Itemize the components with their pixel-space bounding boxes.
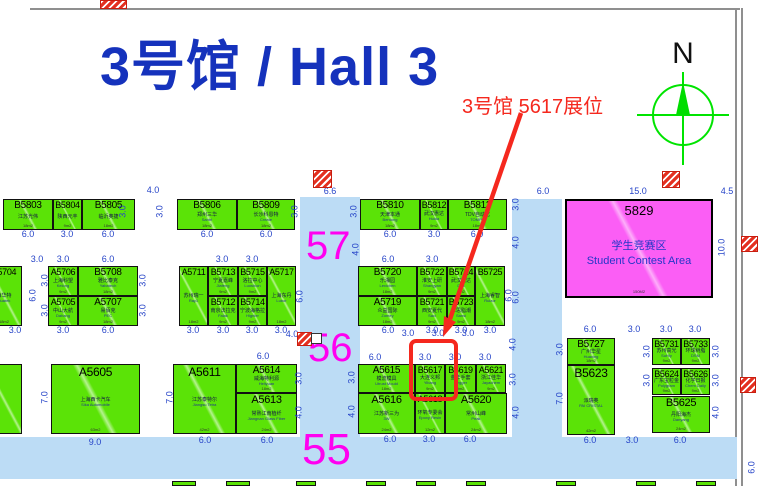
dimension-label: 6.0 [372,435,408,444]
booth-A5621: A5621浙江佳华Jayachem9m2 [476,364,506,393]
booth-B5804: B5804陕西元丰9m2 [53,199,82,230]
booth-number: B5723 [449,298,474,307]
dimension-label: 4.5 [709,187,745,196]
booth-A5618: A5618环氧专委会Epoxy Resin12m2 [415,393,445,434]
dimension-label: 7.0 [41,380,50,416]
floorplan-canvas: 57 56 55 B5803江苏光伟18m2B5804陕西元丰9m2B5805临… [0,0,760,486]
booth-B5624: B5624广东宝粒金Polygram9m2 [652,368,681,395]
booth-exhibitor-name-en: Huatek [0,299,12,304]
pillar-marker [313,170,332,188]
booth-size: 24m2 [261,427,271,432]
dimension-label: 3.0 [512,187,521,223]
dimension-label: 6.0 [90,326,126,335]
booth-exhibitor-name-en: Ruizor [480,299,500,304]
booth-B5806: B5806郑州三华Santri18m2 [177,199,237,230]
dimension-label: 6.0 [249,436,285,445]
dimension-label: 3.0 [49,230,85,239]
booth-number: A5620 [461,395,491,407]
dimension-label: 3.0 [677,325,713,334]
dimension-label: 4.0 [348,394,357,430]
dimension-label: 3.0 [0,326,33,335]
aisle-white-box [311,333,322,344]
dimension-label: 3.0 [295,361,304,397]
booth-size: 9m2 [428,289,436,294]
dimension-label: 3.0 [416,230,452,239]
booth-number: B5813 [464,201,491,212]
booth-size: 18m2 [103,289,113,294]
aisle-number-55: 55 [302,428,351,472]
booth-A5605: A5605上海西卡汽车Sika Automobile63m2 [51,364,140,434]
booth-B5619: B5619金华手套Hegger9m2 [445,364,476,393]
booth-B5812: B5812武汉惠达Huida9m2 [420,199,448,230]
booth-exhibitor-name-en: Huida [424,217,444,222]
booth-B5715: B5715洛拉中心Luoshion9m2 [238,266,267,296]
dimension-label: 9.0 [77,438,113,447]
booth-number: A5719 [374,298,401,309]
booth-B5809: B5809长沙科恩特Create18m2 [237,199,295,230]
dimension-label: 3.0 [41,293,50,329]
booth-B5625: B5625丹阳海杰Danyang24m2 [652,396,710,433]
booth-size: 18m2 [0,319,9,324]
booth-exhibitor-name-en: Jiafeng [213,284,233,289]
booth-edge-sliver [366,481,386,486]
booth-A5717: A5717上海东丹Lubor18m2 [267,266,296,326]
dimension-label: 3.0 [643,363,652,399]
booth-B5721: B5721西安夏代Saci9m2 [417,296,447,326]
dimension-label: 6.6 [312,187,348,196]
dimension-label: 3.0 [411,435,447,444]
booth-number: B5803 [14,201,41,212]
booth-exhibitor-name-en: Hignler [240,314,265,319]
dimension-label: 6.0 [248,230,284,239]
dimension-label: 3.0 [119,194,128,230]
booth-exhibitor-name-en: Falak [210,314,235,319]
booth-callout-text: 3号馆 5617展位 [462,90,603,119]
booth-number: A5705 [51,298,76,307]
dimension-label: 6.0 [90,230,126,239]
booth-number: B5720 [374,268,401,279]
booth-number: A5711 [182,268,206,277]
pillar-marker [741,236,758,252]
booth-number: B5809 [252,201,279,212]
booth-size: 18m2 [382,289,392,294]
booth-B5725: B5725上海睿智Ruizor18m2 [475,266,505,326]
booth-size: 24m2 [676,426,686,431]
dimension-label: 4.0 [295,395,304,431]
booth-size: 18m2 [385,223,395,228]
booth-exhibitor-name-en: Epoxy Resin [417,416,442,421]
booth-B5810: B5810天津本通Bentong18m2 [360,199,420,230]
booth-edge-sliver [416,481,436,486]
booth-B5813: B5813TDV自动化TOMPO18m2 [448,199,507,230]
dimension-label: 7.0 [556,381,565,417]
dimension-label: 3.0 [509,362,518,398]
booth-size: 9m2 [430,223,438,228]
booth-edge-sliver [636,481,656,486]
booth-edge-sliver [226,481,250,486]
booth-size: 9m2 [457,386,465,391]
dimension-label: 3.0 [45,255,81,264]
dimension-label: 3.0 [712,363,721,399]
dimension-label: 6.0 [452,435,488,444]
pillar-marker [740,377,756,393]
booth-exhibitor-name-en: PAI CRISTAL [579,404,603,409]
dimension-label: 6.0 [572,436,608,445]
dimension-label: 3.0 [450,329,486,338]
booth-B5713: B5713宁夏嘉峰Jiafeng9m2 [208,266,238,296]
booth-exhibitor-name-en: Lubor [271,299,291,304]
dimension-label: 3.0 [467,353,503,362]
booth-number: A5618 [418,395,443,404]
booth-number: A5707 [94,298,121,309]
booth-size: 9m2 [426,386,434,391]
booth-exhibitor-name-en: Sika Automobile [80,403,110,408]
booth-unlabeled [0,364,22,434]
pillar-marker [297,332,312,346]
booth-size: 9m2 [59,319,67,324]
dimension-label: 10.0 [718,230,727,266]
booth-size: 24m2 [471,427,481,432]
booth-edge-sliver [556,481,576,486]
dimension-label: 3.0 [614,436,650,445]
booth-size: 24m2 [381,427,391,432]
dimension-label: 3.0 [348,360,357,396]
booth-B5623: B5623派瑞奥PAI CRISTAL42m2 [567,365,615,435]
booth-size: 9m2 [663,388,671,393]
booth-exhibitor-name-en: Santri [197,218,217,223]
booth-exhibitor-name: 陕西元丰 [57,214,77,220]
booth-size: 18m2 [381,386,391,391]
booth-exhibitor-name-en: Dahang [53,314,73,319]
booth-A5616: A5616江苏新三为3W24m2 [358,393,415,434]
booth-size: 9m2 [219,289,227,294]
booth-B5708: B5708雅比泰克Yabatech18m2 [78,266,138,296]
dimension-label: 6.0 [372,230,408,239]
booth-number: B5623 [574,367,607,380]
booth-exhibitor-name-en: Create [253,218,278,223]
booth-size: 18m2 [103,223,113,228]
dimension-label: 6.0 [370,255,406,264]
booth-exhibitor-name-en: 3W [374,417,399,422]
booth-number: A5611 [188,366,220,379]
dimension-label: 7.0 [166,380,175,416]
booth-number: A5605 [79,366,112,379]
booth-size: 18m2 [586,358,596,363]
booth-number: B5714 [240,298,265,307]
booth-exhibitor-name-en: Sansi [451,314,471,319]
booth-size: 12m2 [425,427,435,432]
booth-size: 9m2 [487,386,495,391]
booth-edge-sliver [466,481,486,486]
booth-B5722: B5722淮安上研Shangyan9m2 [417,266,447,296]
booth-number: A5616 [371,395,401,407]
booth-number: B5725 [478,268,503,277]
booth-number: B5708 [94,268,121,279]
compass-n-label: N [672,37,694,70]
dimension-label: 4.0 [512,225,521,261]
booth-A5705: A5705中山大航Dahang9m2 [48,296,78,326]
booth-A5613: A5613常熟江南植纤Jiangnan Glass Fiber24m2 [236,393,297,434]
booth-size: 18m2 [261,223,271,228]
booth-A5611: A5611江苏泰特尔Jiangsu Tetra42m2 [173,364,236,434]
page-title: 3号馆 / Hall 3 [100,22,439,101]
booth-A5719: A5719众益国际Zomey18m2 [358,296,417,326]
booth-size: 63m2 [90,427,100,432]
booth-size: 18m2 [382,319,392,324]
dimension-label: 6.0 [296,279,305,315]
booth-exhibitor-name-en: Danyang [671,418,691,423]
compass: N [630,28,740,173]
student-contest-area: 5829 学生竞赛区 Student Contest Area 150M2 [565,199,713,298]
booth-size: 18m2 [276,319,286,324]
booth-number: B5722 [420,268,445,277]
dimension-label: 3.0 [350,194,359,230]
dimension-label: 6.0 [90,255,126,264]
booth-exhibitor-name-en: Ray1 [183,299,203,304]
contest-area-name-en: Student Contest Area [587,254,692,268]
booth-number: B5713 [211,268,236,277]
dimension-label: 15.0 [620,187,656,196]
booth-A5704: A5704西华特Huatek18m2 [0,266,22,326]
booth-number: B5625 [666,398,696,410]
booth-B5723: B5723三思脂潮Sansi9m2 [447,296,475,326]
booth-size: 18m2 [472,223,482,228]
booth-exhibitor-name: 临沂奥捷 [98,214,118,220]
pillar-marker [100,0,127,9]
booth-exhibitor-name-en: Saci [422,314,442,319]
booth-size: 9m2 [692,358,700,363]
booth-size: 42m2 [199,427,209,432]
booth-size: 18m2 [188,319,198,324]
booth-size: 18m2 [103,319,113,324]
dimension-label: 4.0 [712,395,721,431]
booth-exhibitor-name-en: Kelong [53,284,73,289]
dimension-label: 6.0 [748,450,757,486]
booth-size: 18m2 [23,223,33,228]
pillar-marker [662,171,680,188]
booth-size: 9m2 [219,319,227,324]
booth-number: A5717 [269,268,294,277]
booth-number: B5715 [240,268,265,277]
booth-exhibitor-name-en: Peak [466,417,486,422]
dimension-label: 4.0 [512,395,521,431]
booth-B5720: B5720乐湘园Lexichen18m2 [358,266,417,296]
booth-size: 9m2 [663,358,671,363]
booth-exhibitor-name-en: Jiangnan Glass Fiber [248,417,286,422]
booth-B5714: B5714宁波海格拉Hignler9m2 [238,296,267,326]
booth-size: 9m2 [428,319,436,324]
booth-edge-sliver [296,481,316,486]
dimension-label: 6.0 [187,436,223,445]
booth-exhibitor-name: 江苏光伟 [18,214,38,220]
dimension-label: 6.0 [505,278,514,314]
booth-exhibitor-name-en: Luoshion [242,284,262,289]
booth-size: 9m2 [59,289,67,294]
booth-number: B5806 [193,201,220,212]
dimension-label: 6.0 [357,353,393,362]
dimension-label: 6.0 [662,436,698,445]
booth-number: A5613 [251,395,281,407]
booth-B5727: B5727广州华星Huaxing18m2 [567,338,615,365]
booth-B5626: B5626化学日报Chem Daily9m2 [681,368,710,395]
booth-edge-sliver [172,481,196,486]
dimension-label: 6.0 [525,187,561,196]
booth-exhibitor-name-en: Shangyan [422,284,442,289]
dimension-label: 3.0 [139,293,148,329]
dimension-label: 3.0 [556,332,565,368]
dimension-label: 6.0 [10,230,46,239]
booth-A5614: A5614威海特利源Heliyuan18m2 [236,364,297,393]
booth-A5707: A5707易佰克PEC18m2 [78,296,138,326]
booth-size: 9m2 [692,388,700,393]
compass-needle-icon [676,82,690,115]
contest-area-size: 150M2 [633,289,645,294]
dimension-label: 3.0 [234,255,270,264]
booth-size: 18m2 [202,223,212,228]
dimension-label: 3.0 [291,194,300,230]
booth-size: 18m2 [485,319,495,324]
booth-size: 9m2 [249,319,257,324]
booth-exhibitor-name-en: Bentong [380,218,400,223]
dimension-label: 4.0 [135,186,171,195]
booth-size: 9m2 [64,223,72,228]
booth-size: 42m2 [586,428,596,433]
booth-number: A5706 [51,268,76,277]
booth-A5706: A5706上海科望Kelong9m2 [48,266,78,296]
dimension-label: 6.0 [572,325,608,334]
booth-B5724: B5724武汉君达Dita9m2 [447,266,475,296]
dimension-label: 3.0 [156,194,165,230]
booth-B5803: B5803江苏光伟18m2 [3,199,53,230]
booth-exhibitor-name-en: Jiangsu Tetra [192,403,217,408]
booth-A5711: A5711苏州瑞一Ray118m2 [179,266,208,326]
booth-B5617: B5617大连义邦Yibang9m2 [415,364,445,393]
dimension-label: 4.0 [509,327,518,363]
booth-B5733: B5733环球树脂DSM9m2 [681,338,710,365]
booth-A5620: A5620常州山峰Peak24m2 [445,393,507,434]
dimension-label: 3.0 [45,326,81,335]
dimension-label: 6.0 [245,352,281,361]
booth-number: B5812 [422,201,447,210]
dimension-label: 3.0 [414,255,450,264]
booth-exhibitor-name-en: Dita [451,284,471,289]
booth-number: B5810 [376,201,403,212]
dimension-label: 4.0 [352,232,361,268]
booth-number: B5724 [449,268,474,277]
booth-size: 18m2 [261,386,271,391]
contest-area-number: 5829 [625,203,654,218]
dimension-label: 6.0 [189,230,225,239]
booth-size: 9m2 [457,319,465,324]
booth-A5615: A5615模流模具Utrust Mould18m2 [358,364,415,393]
booth-B5712: B5712南京法拉克Falak9m2 [208,296,238,326]
booth-size: 9m2 [249,289,257,294]
booth-number: B5721 [420,298,445,307]
hall-boundary-top [30,8,740,10]
contest-area-name-cn: 学生竞赛区 [587,239,692,253]
booth-edge-sliver [696,481,716,486]
booth-B5731: B5731苏州高光SuHiy9m2 [652,338,681,365]
booth-size: 9m2 [457,289,465,294]
dimension-label: 6.0 [29,278,38,314]
booth-number: B5804 [55,201,80,210]
aisle-number-57: 57 [306,226,351,266]
booth-number: B5712 [211,298,236,307]
booth-number: A5704 [0,268,16,277]
dimension-label: 6.0 [459,230,495,239]
booth-exhibitor-name-en: TOMPO [465,218,490,223]
